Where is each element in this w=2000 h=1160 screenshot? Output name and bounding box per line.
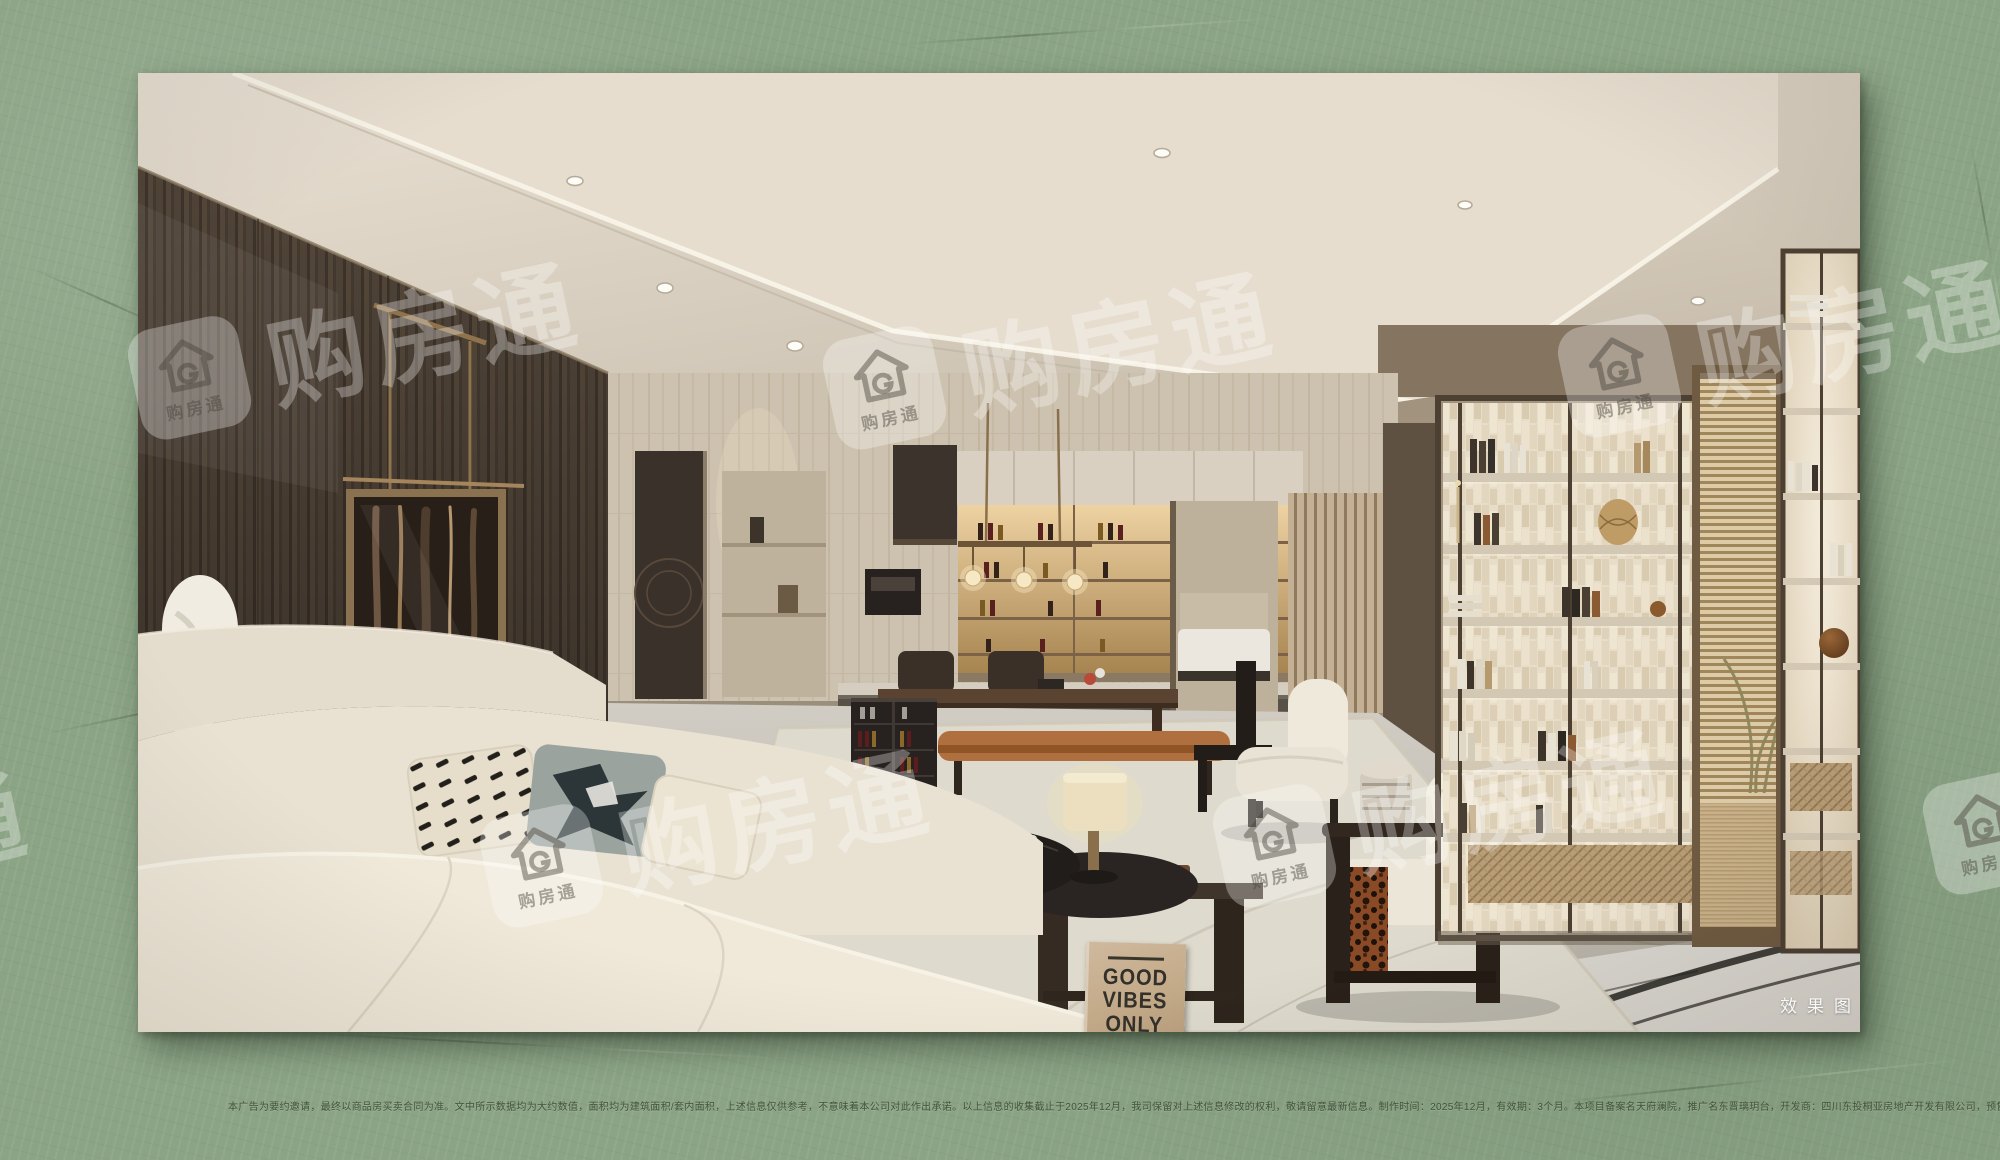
sign-rule xyxy=(1108,956,1164,960)
sign-line: ONLY xyxy=(1084,1011,1185,1032)
watermark-text: 购房通 xyxy=(0,736,44,941)
disclaimer-text: 本广告为要约邀请，最终以商品房买卖合同为准。文中所示数据均为大约数值，面积均为建… xyxy=(228,1100,1813,1115)
texture-crease xyxy=(1551,1058,1969,1104)
interior-rendering-photo: GOOD VIBES ONLY 效果图 xyxy=(138,73,1860,1032)
living-room-scene xyxy=(138,73,1860,1032)
advertisement-page: { "page": { "background_color": "#8ca486… xyxy=(0,0,2000,1160)
watermark: 购房通 购房通 xyxy=(1915,681,2000,914)
photo-vignette xyxy=(138,73,1860,1032)
texture-crease xyxy=(1970,142,2000,359)
good-vibes-sign: GOOD VIBES ONLY xyxy=(1084,942,1187,1032)
texture-crease xyxy=(300,1032,799,1060)
watermark: 购房通 购房通 xyxy=(0,736,44,969)
watermark-badge: 购房通 xyxy=(1918,766,2000,899)
watermark-badge-label: 购房通 xyxy=(1959,843,2000,880)
texture-crease xyxy=(900,17,1279,46)
rendering-label: 效果图 xyxy=(1780,992,1860,1017)
house-icon xyxy=(1946,786,2000,854)
